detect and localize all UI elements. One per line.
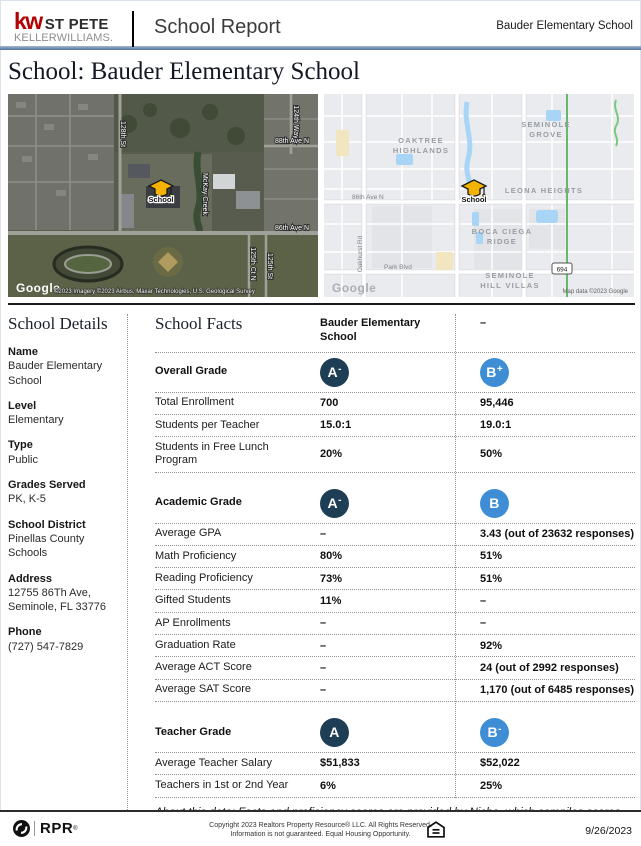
- footer-copyright: Copyright 2023 Realtors Property Resourc…: [181, 821, 461, 840]
- facts-district-value: 51%: [455, 572, 635, 586]
- report-title: School Report: [154, 16, 281, 39]
- road-label-125th-st: 125th St: [266, 253, 273, 279]
- facts-row-label: Overall Grade: [155, 365, 320, 379]
- grade-badge: B: [480, 489, 509, 518]
- detail-field-value: PK, K-5: [8, 492, 117, 506]
- road-label-124th-way: 124th Way: [292, 105, 299, 139]
- facts-school-value: 15.0:1: [320, 418, 455, 432]
- rpr-logo-divider: [34, 821, 35, 836]
- neighborhood-hill-villas: SEMINOLE: [485, 271, 535, 280]
- facts-row: Average GPA–3.43 (out of 23632 responses…: [155, 524, 635, 546]
- facts-school-value: –: [320, 683, 455, 697]
- school-details-title: School Details: [8, 314, 117, 334]
- satellite-map: 128th St 124th Way 88th Ave N McKay Cree…: [8, 94, 318, 297]
- facts-row: Teachers in 1st or 2nd Year6%25%: [155, 775, 635, 797]
- equal-housing-icon: [427, 821, 445, 838]
- facts-school-value: A-: [320, 358, 455, 387]
- facts-school-value: 700: [320, 396, 455, 410]
- detail-field: Address12755 86Th Ave, Seminole, FL 3377…: [8, 572, 117, 615]
- facts-district-value: $52,022: [455, 756, 635, 770]
- facts-school-value: A: [320, 718, 455, 747]
- detail-field-value: Bauder Elementary School: [8, 359, 117, 388]
- facts-district-value: –: [455, 616, 635, 630]
- creek-label: McKay Creek: [201, 173, 208, 216]
- facts-school-value: A-: [320, 489, 455, 518]
- facts-district-value: –: [455, 594, 635, 608]
- detail-field-label: Level: [8, 399, 117, 413]
- facts-school-value: –: [320, 616, 455, 630]
- street-map-image: OAKTREE HIGHLANDS SEMINOLE GROVE LEONA H…: [324, 94, 634, 297]
- report-date: 9/26/2023: [585, 825, 632, 837]
- column-header-district: –: [455, 314, 635, 331]
- grade-badge: A-: [320, 358, 349, 387]
- facts-school-value: 80%: [320, 549, 455, 563]
- kw-logo-office: ST PETE: [45, 16, 109, 33]
- grade-badge: A: [320, 718, 349, 747]
- school-facts-table: School Facts Bauder Elementary School – …: [155, 314, 635, 798]
- school-details-panel: School Details NameBauder Elementary Sch…: [8, 314, 127, 846]
- section-divider: [8, 303, 635, 305]
- school-marker-label: School: [148, 195, 173, 204]
- neighborhood-seminole-grove-2: GROVE: [529, 130, 563, 139]
- school-report-page: kw ST PETE KELLERWILLIAMS. School Report…: [0, 0, 641, 846]
- kw-logo: kw ST PETE KELLERWILLIAMS.: [14, 11, 118, 44]
- neighborhood-hill-villas-2: HILL VILLAS: [480, 281, 540, 290]
- copyright-line-1: Copyright 2023 Realtors Property Resourc…: [181, 821, 461, 830]
- satellite-map-image: 128th St 124th Way 88th Ave N McKay Cree…: [8, 94, 318, 297]
- road-label-88th-ave: 88th Ave N: [275, 138, 309, 145]
- facts-row: AP Enrollments––: [155, 613, 635, 635]
- rpr-logo-icon: [13, 820, 30, 837]
- neighborhood-boca-ciega-2: RIDGE: [487, 237, 517, 246]
- facts-row-label: Graduation Rate: [155, 639, 320, 653]
- facts-row-label: Academic Grade: [155, 496, 320, 510]
- detail-field: Phone(727) 547-7829: [8, 625, 117, 654]
- header-rule: [0, 46, 641, 50]
- facts-district-value: 24 (out of 2992 responses): [455, 661, 635, 675]
- facts-district-value: 92%: [455, 639, 635, 653]
- grade-badge: A-: [320, 489, 349, 518]
- neighborhood-oaktree-2: HIGHLANDS: [393, 146, 449, 155]
- maps-row: 128th St 124th Way 88th Ave N McKay Cree…: [8, 94, 634, 297]
- road-label-oakhurst-rd: Oakhurst Rd: [357, 235, 364, 272]
- detail-field-value: Public: [8, 453, 117, 467]
- grade-badge: B-: [480, 718, 509, 747]
- school-details-fields: NameBauder Elementary SchoolLevelElement…: [8, 345, 117, 654]
- facts-row: Average Teacher Salary$51,833$52,022: [155, 753, 635, 775]
- facts-rows: Overall GradeA-B+Total Enrollment70095,4…: [155, 353, 635, 798]
- facts-district-value: 25%: [455, 779, 635, 793]
- facts-row-label: Reading Proficiency: [155, 572, 320, 586]
- facts-row-label: Math Proficiency: [155, 550, 320, 564]
- facts-header-row: School Facts Bauder Elementary School –: [155, 314, 635, 353]
- facts-district-value: 3.43 (out of 23632 responses): [455, 527, 635, 541]
- facts-row: Overall GradeA-B+: [155, 353, 635, 393]
- detail-field: Grades ServedPK, K-5: [8, 478, 117, 507]
- page-title: School: Bauder Elementary School: [8, 58, 633, 86]
- facts-row-label: Average Teacher Salary: [155, 757, 320, 771]
- detail-field-value: 12755 86Th Ave, Seminole, FL 33776: [8, 586, 117, 615]
- facts-row-label: Average SAT Score: [155, 683, 320, 697]
- facts-row: Math Proficiency80%51%: [155, 546, 635, 568]
- google-logo: Google: [332, 281, 376, 295]
- kw-logo-mark: kw: [14, 11, 42, 32]
- column-divider: [455, 314, 456, 798]
- report-header: kw ST PETE KELLERWILLIAMS. School Report…: [0, 0, 641, 45]
- facts-row: Teacher GradeAB-: [155, 713, 635, 753]
- facts-row-label: Students in Free Lunch Program: [155, 441, 320, 469]
- column-header-school: Bauder Elementary School: [320, 314, 455, 345]
- facts-district-value: 1,170 (out of 6485 responses): [455, 683, 635, 697]
- facts-district-value: 19.0:1: [455, 418, 635, 432]
- facts-school-value: –: [320, 661, 455, 675]
- rpr-logo-text: RPR: [40, 820, 73, 837]
- facts-district-value: B-: [455, 718, 635, 747]
- detail-field-label: Phone: [8, 625, 117, 639]
- facts-row: Average ACT Score–24 (out of 2992 respon…: [155, 657, 635, 679]
- rpr-registered-mark: ®: [73, 826, 77, 832]
- detail-field-value: (727) 547-7829: [8, 640, 117, 654]
- map-attribution: ©2023 Imagery ©2023 Airbus, Maxar Techno…: [54, 288, 255, 295]
- detail-field-label: Name: [8, 345, 117, 359]
- neighborhood-seminole-grove: SEMINOLE: [521, 120, 571, 129]
- facts-district-value: 51%: [455, 549, 635, 563]
- neighborhood-boca-ciega: BOCA CIEGA: [472, 227, 533, 236]
- facts-school-value: 73%: [320, 572, 455, 586]
- detail-field: NameBauder Elementary School: [8, 345, 117, 388]
- detail-field-label: Grades Served: [8, 478, 117, 492]
- header-divider: [132, 11, 134, 47]
- detail-field: LevelElementary: [8, 399, 117, 428]
- rpr-logo: RPR®: [13, 820, 78, 837]
- facts-row-label: Gifted Students: [155, 594, 320, 608]
- school-facts-title: School Facts: [155, 314, 320, 334]
- facts-district-value: B: [455, 489, 635, 518]
- facts-school-value: $51,833: [320, 756, 455, 770]
- road-label-86th-ave: 86th Ave N: [275, 225, 309, 232]
- facts-district-value: 50%: [455, 447, 635, 461]
- detail-field-label: Type: [8, 438, 117, 452]
- facts-row: Gifted Students11%–: [155, 590, 635, 612]
- facts-school-value: 11%: [320, 594, 455, 608]
- facts-district-value: 95,446: [455, 396, 635, 410]
- neighborhood-leona-heights: LEONA HEIGHTS: [505, 186, 583, 195]
- copyright-line-2: Information is not guaranteed. Equal Hou…: [181, 830, 461, 839]
- facts-row: Students in Free Lunch Program20%50%: [155, 437, 635, 473]
- facts-row-label: AP Enrollments: [155, 617, 320, 631]
- header-school-name: Bauder Elementary School: [496, 20, 633, 32]
- facts-row: Graduation Rate–92%: [155, 635, 635, 657]
- facts-school-value: 20%: [320, 447, 455, 461]
- road-label-86th-ave: 86th Ave N: [352, 194, 384, 201]
- facts-row: Reading Proficiency73%51%: [155, 568, 635, 590]
- neighborhood-oaktree: OAKTREE: [398, 136, 444, 145]
- detail-field: TypePublic: [8, 438, 117, 467]
- report-body: School Details NameBauder Elementary Sch…: [8, 314, 635, 846]
- detail-field-label: School District: [8, 518, 117, 532]
- facts-row: Total Enrollment70095,446: [155, 393, 635, 415]
- detail-field-value: Elementary: [8, 413, 117, 427]
- facts-row-label: Teachers in 1st or 2nd Year: [155, 779, 320, 793]
- facts-row: Average SAT Score–1,170 (out of 6485 res…: [155, 680, 635, 702]
- facts-row: Academic GradeA-B: [155, 484, 635, 524]
- report-footer: RPR® Copyright 2023 Realtors Property Re…: [0, 810, 641, 846]
- grade-badge: B+: [480, 358, 509, 387]
- facts-row-label: Total Enrollment: [155, 396, 320, 410]
- route-694-label: 694: [557, 267, 568, 274]
- facts-district-value: B+: [455, 358, 635, 387]
- detail-field-value: Pinellas County Schools: [8, 532, 117, 561]
- facts-row-label: Average GPA: [155, 527, 320, 541]
- road-label-128th-st: 128th St: [119, 121, 126, 147]
- school-marker-label: School: [461, 195, 486, 204]
- facts-school-value: –: [320, 527, 455, 541]
- kw-logo-company: KELLERWILLIAMS.: [14, 32, 118, 44]
- road-label-125th-ct: 125th Ct N: [249, 247, 256, 280]
- school-facts-panel: School Facts Bauder Elementary School – …: [127, 314, 635, 846]
- detail-field-label: Address: [8, 572, 117, 586]
- facts-row: Students per Teacher15.0:119.0:1: [155, 415, 635, 437]
- facts-row-label: Average ACT Score: [155, 661, 320, 675]
- map-attribution: Map data ©2023 Google: [563, 288, 629, 295]
- road-label-park-blvd: Park Blvd: [384, 264, 412, 271]
- facts-row-label: Students per Teacher: [155, 419, 320, 433]
- facts-row-label: Teacher Grade: [155, 726, 320, 740]
- facts-school-value: 6%: [320, 779, 455, 793]
- detail-field: School DistrictPinellas County Schools: [8, 518, 117, 561]
- facts-school-value: –: [320, 639, 455, 653]
- street-map: OAKTREE HIGHLANDS SEMINOLE GROVE LEONA H…: [324, 94, 634, 297]
